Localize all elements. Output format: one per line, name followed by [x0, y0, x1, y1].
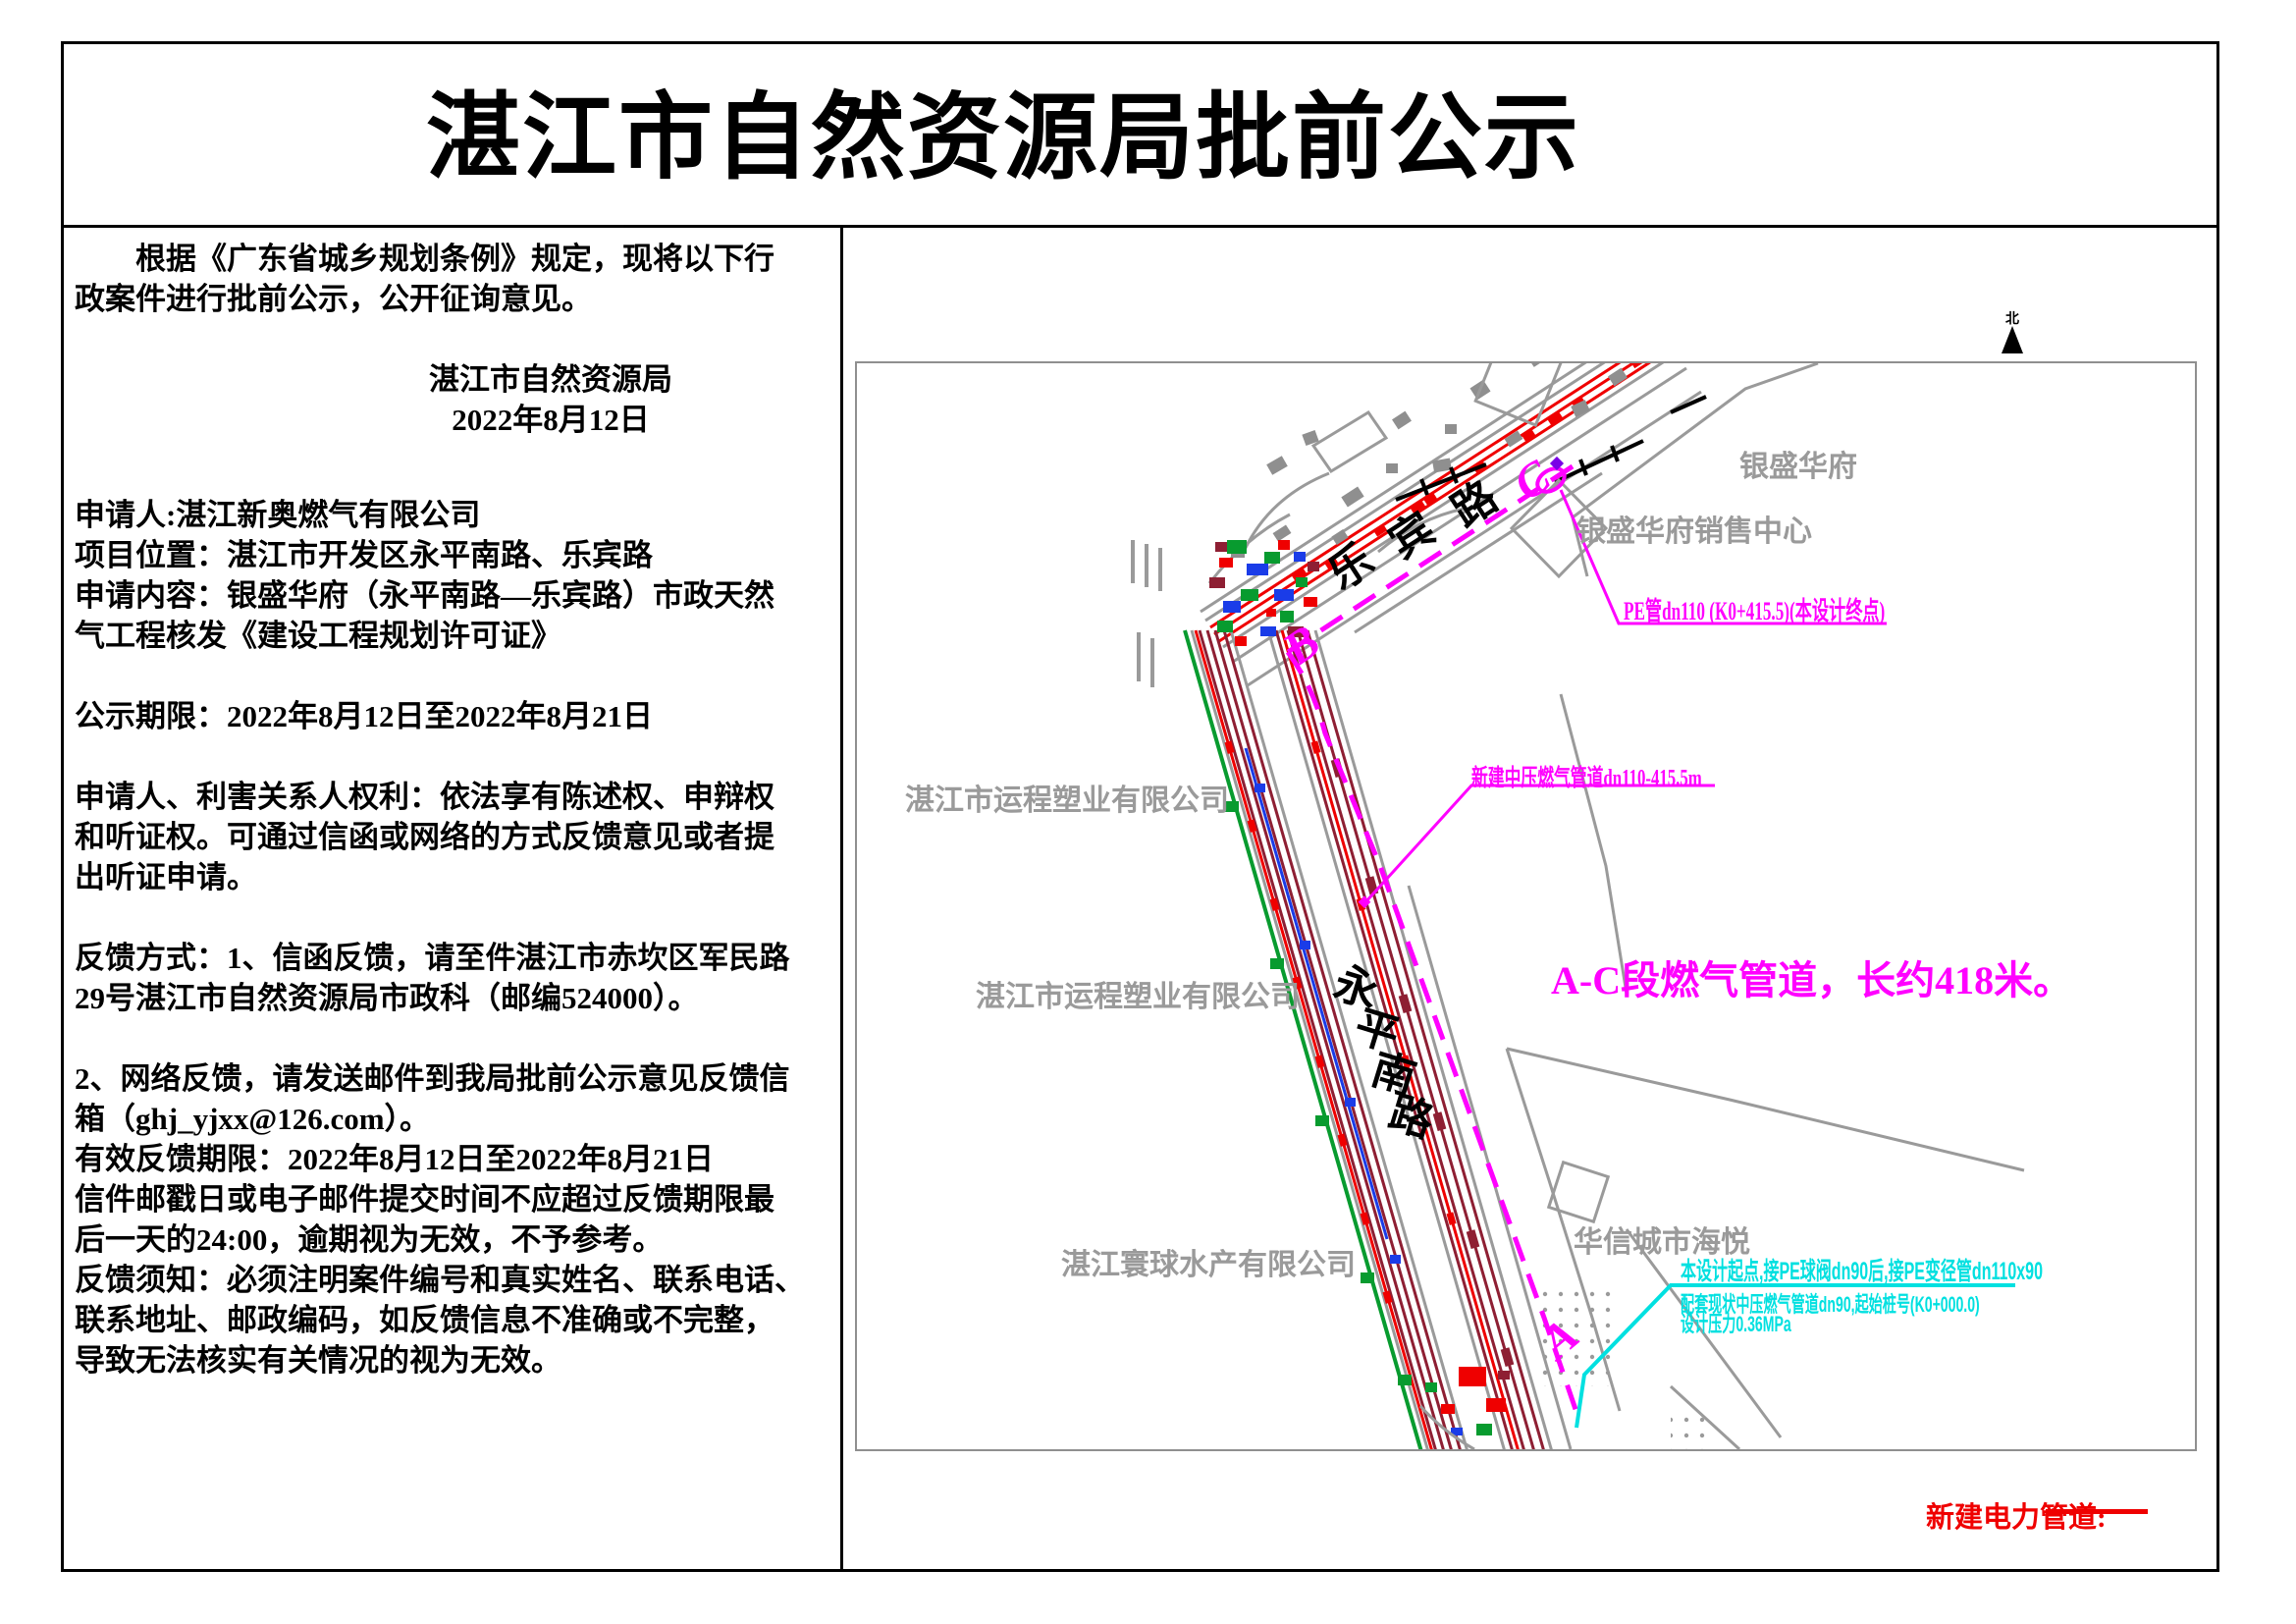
notice-application: 申请人:湛江新奥燃气有限公司 项目位置：湛江市开发区永平南路、乐宾路 申请内容：… — [75, 495, 827, 656]
label-start-line1-text: 本设计起点,接PE球阀dn90后,接PE变径管dn110x90 — [1681, 1252, 2043, 1287]
notice-feedback-mail: 反馈方式：1、信函反馈，请至件湛江市赤坎区军民路 29号湛江市自然资源局市政科（… — [75, 938, 827, 1018]
label-start-line1: 本设计起点,接PE球阀dn90后,接PE变径管dn110x90 — [1681, 1252, 2197, 1287]
north-arrow-icon — [2002, 326, 2023, 353]
label-pipe-mid-text: 新建中压燃气管道dn110-415.5m — [1471, 758, 1702, 792]
label-start-line3: 设计压力0.36MPa — [1681, 1307, 1853, 1338]
label-pipe-endpoint: PE管dn110 (K0+415.5)(本设计终点) — [1624, 591, 2019, 627]
signature-agency: 湛江市自然资源局 — [320, 359, 781, 400]
label-yinsheng-sales: 银盛华府销售中心 — [1576, 507, 1812, 550]
legend-power-label: 新建电力管道: — [1926, 1494, 2107, 1536]
label-yuncheng-1: 湛江市运程塑业有限公司 — [905, 776, 1229, 819]
label-huanqiu: 湛江寰球水产有限公司 — [1061, 1240, 1356, 1283]
label-yuncheng-2: 湛江市运程塑业有限公司 — [976, 972, 1300, 1015]
label-pipe-mid: 新建中压燃气管道dn110-415.5m — [1471, 758, 1800, 792]
notice-period: 公示期限：2022年8月12日至2022年8月21日 — [75, 696, 827, 736]
legend-power-line-swatch — [2046, 1509, 2148, 1514]
notice-column: 根据《广东省城乡规划条例》规定，现将以下行 政案件进行批前公示，公开征询意见。 … — [75, 239, 827, 1380]
label-yinsheng: 银盛华府 — [1739, 442, 1857, 485]
north-label: 北 — [1993, 314, 2032, 326]
label-pipe-endpoint-text: PE管dn110 (K0+415.5)(本设计终点) — [1624, 591, 1885, 627]
hatch-area-2 — [1671, 1414, 1714, 1449]
notice-feedback-online: 2、网络反馈，请发送邮件到我局批前公示意见反馈信 箱（ghj_yjxx@126.… — [75, 1058, 827, 1380]
column-divider — [840, 225, 843, 1569]
title-separator — [61, 225, 2216, 228]
signature-date: 2022年8月12日 — [320, 400, 781, 440]
north-arrow: 北 — [1993, 314, 2032, 353]
notice-rights: 申请人、利害关系人权利：依法享有陈述权、申辩权 和听证权。可通过信函或网络的方式… — [75, 777, 827, 897]
west-gray-marks — [1133, 540, 1160, 687]
label-segment-note: A-C段燃气管道，长约418米。 — [1551, 948, 2072, 1005]
site-map: 银盛华府 银盛华府销售中心 湛江市运程塑业有限公司 湛江市运程塑业有限公司 湛江… — [855, 361, 2197, 1451]
page-title: 湛江市自然资源局批前公示 — [61, 61, 1946, 197]
notice-intro: 根据《广东省城乡规划条例》规定，现将以下行 政案件进行批前公示，公开征询意见。 — [75, 239, 827, 319]
signature-block: 湛江市自然资源局 2022年8月12日 — [320, 359, 781, 440]
label-start-line3-text: 设计压力0.36MPa — [1681, 1307, 1791, 1338]
pipe-mid-leader — [1359, 785, 1715, 908]
